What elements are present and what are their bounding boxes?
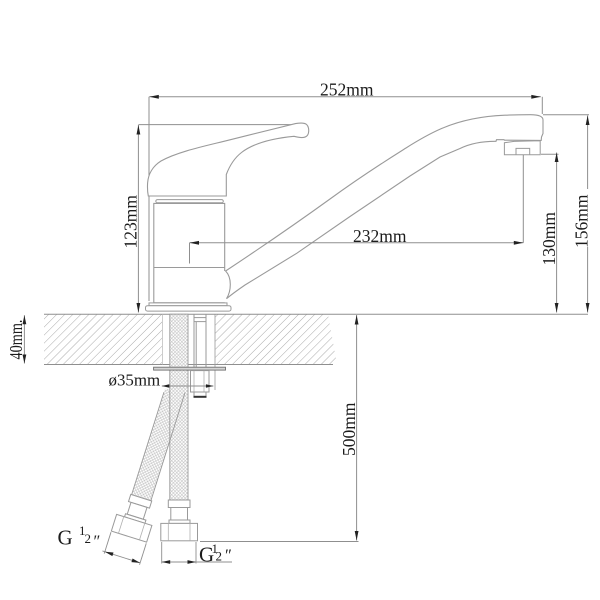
- svg-text:130mm: 130mm: [539, 212, 559, 266]
- svg-text:40mm.: 40mm.: [6, 320, 26, 360]
- svg-text:123mm: 123mm: [121, 195, 141, 249]
- svg-text:500mm: 500mm: [339, 402, 359, 456]
- svg-text:″: ″: [225, 546, 232, 565]
- svg-text:252mm: 252mm: [320, 80, 374, 100]
- svg-text:156mm: 156mm: [572, 194, 592, 248]
- svg-text:ø35mm: ø35mm: [109, 371, 161, 390]
- svg-text:″: ″: [94, 532, 101, 551]
- svg-text:2: 2: [216, 549, 223, 564]
- svg-text:232mm: 232mm: [353, 226, 407, 246]
- svg-text:2: 2: [85, 531, 92, 546]
- svg-text:G: G: [58, 526, 73, 550]
